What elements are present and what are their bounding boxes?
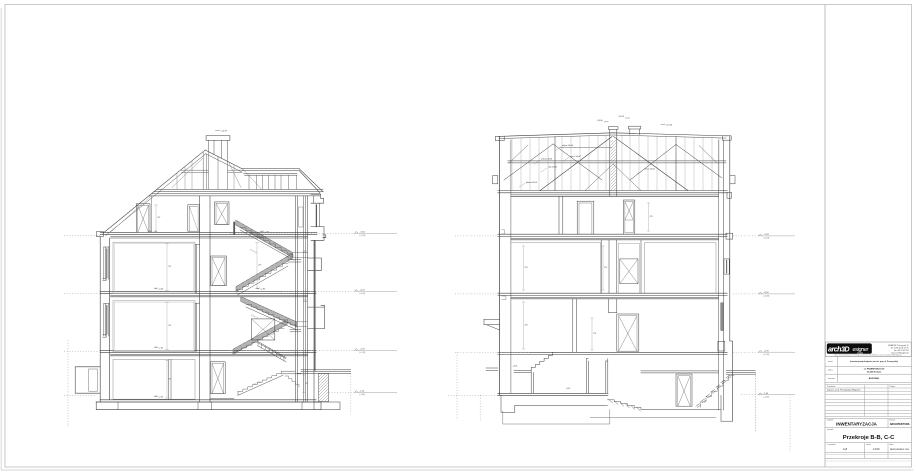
svg-text:PAŹDZIERNIK 2011: PAŹDZIERNIK 2011 — [890, 448, 910, 451]
svg-text:(+4,56): (+4,56) — [764, 296, 770, 298]
svg-text:287: 287 — [168, 266, 171, 268]
svg-text:+2,84: +2,84 — [158, 347, 163, 349]
svg-text:-0,61: -0,61 — [566, 388, 570, 390]
svg-text:276: 276 — [604, 267, 607, 269]
svg-text:(+1,76): (+1,76) — [360, 352, 366, 354]
svg-text:+13,42: +13,42 — [618, 116, 625, 118]
svg-text:krokiew 8x16: krokiew 8x16 — [541, 158, 552, 161]
svg-text:+13,06: +13,06 — [597, 120, 604, 122]
svg-text:276: 276 — [650, 216, 653, 218]
svg-text:+7,54: +7,54 — [360, 232, 366, 234]
svg-text:+1,76: +1,76 — [360, 349, 366, 351]
svg-text:(-1,30): (-1,30) — [764, 396, 770, 398]
svg-text:ul. PRZEMYSKA 12/3: ul. PRZEMYSKA 12/3 — [864, 368, 885, 371]
svg-text:287: 287 — [168, 325, 171, 327]
svg-text:stadium:: stadium: — [827, 419, 834, 422]
svg-text:BUDOMAL: BUDOMAL — [869, 377, 880, 380]
svg-text:+2,84: +2,84 — [152, 231, 157, 233]
svg-text:(+7,54): (+7,54) — [360, 235, 366, 237]
svg-text:+4,2: +4,2 — [303, 250, 307, 252]
svg-text:+7,63: +7,63 — [764, 234, 770, 236]
svg-text:276: 276 — [593, 333, 596, 335]
svg-text:287: 287 — [157, 217, 160, 219]
svg-text:+12,54: +12,54 — [666, 125, 673, 127]
svg-text:płatew 14x16: płatew 14x16 — [562, 144, 573, 147]
svg-text:INWENTARYZACJA: INWENTARYZACJA — [836, 422, 878, 427]
svg-text:(+1,70): (+1,70) — [764, 354, 770, 356]
svg-text:+12,97: +12,97 — [221, 131, 228, 133]
svg-text:branża:: branża: — [890, 420, 896, 422]
svg-text:Podpis:: Podpis: — [890, 386, 896, 388]
svg-text:Projektant:: Projektant: — [827, 385, 836, 388]
svg-text:Przekroje B-B, C-C: Przekroje B-B, C-C — [843, 435, 895, 441]
svg-text:mgr inż. arch. Przemysław Wojc: mgr inż. arch. Przemysław Wojciech — [827, 389, 861, 392]
svg-text:276: 276 — [525, 267, 528, 269]
svg-text:inwestor:: inwestor: — [828, 377, 836, 380]
svg-text:+2,84: +2,84 — [260, 289, 265, 291]
svg-text:1:100: 1:100 — [873, 447, 880, 451]
svg-text:miecz 14x14: miecz 14x14 — [644, 169, 655, 171]
svg-text:arch3D: arch3D — [828, 345, 849, 354]
svg-text:+2,84: +2,84 — [158, 396, 163, 398]
svg-text:nr rysunku:: nr rysunku: — [827, 444, 836, 446]
svg-text:Inwentaryzacja budynku mieszk.: Inwentaryzacja budynku mieszk. przy ul. … — [850, 360, 898, 363]
svg-text:miecz 14x14: miecz 14x14 — [570, 156, 581, 158]
svg-text:płatew 14x16: płatew 14x16 — [526, 181, 537, 184]
svg-text:+2,84: +2,84 — [158, 289, 163, 291]
svg-text:(+4,70): (+4,70) — [360, 293, 366, 295]
svg-text:data:: data: — [890, 443, 894, 446]
svg-text:temat:: temat: — [828, 360, 833, 363]
svg-text:(+7,63): (+7,63) — [764, 238, 770, 240]
svg-text:słup 14x14: słup 14x14 — [548, 167, 557, 169]
svg-text:adres:: adres: — [828, 370, 833, 372]
svg-text:287: 287 — [168, 378, 171, 380]
svg-text:+1,70: +1,70 — [764, 350, 770, 352]
svg-text:skala:: skala: — [866, 444, 871, 446]
svg-text:287: 287 — [305, 383, 308, 385]
svg-text:276: 276 — [525, 325, 528, 327]
svg-text:A-8: A-8 — [843, 447, 848, 451]
svg-text:-0,08: -0,08 — [513, 365, 517, 367]
svg-text:(-1,24): (-1,24) — [360, 394, 366, 396]
svg-text:ARCHITEKTURA: ARCHITEKTURA — [890, 423, 910, 426]
svg-text:rysunek:: rysunek: — [827, 429, 834, 431]
svg-text:31-530 Kraków: 31-530 Kraków — [867, 371, 882, 374]
svg-text:+1,3: +1,3 — [303, 299, 307, 301]
svg-text:287: 287 — [258, 265, 261, 267]
svg-text:+4,56: +4,56 — [764, 292, 770, 294]
svg-text:+4,70: +4,70 — [360, 290, 366, 292]
